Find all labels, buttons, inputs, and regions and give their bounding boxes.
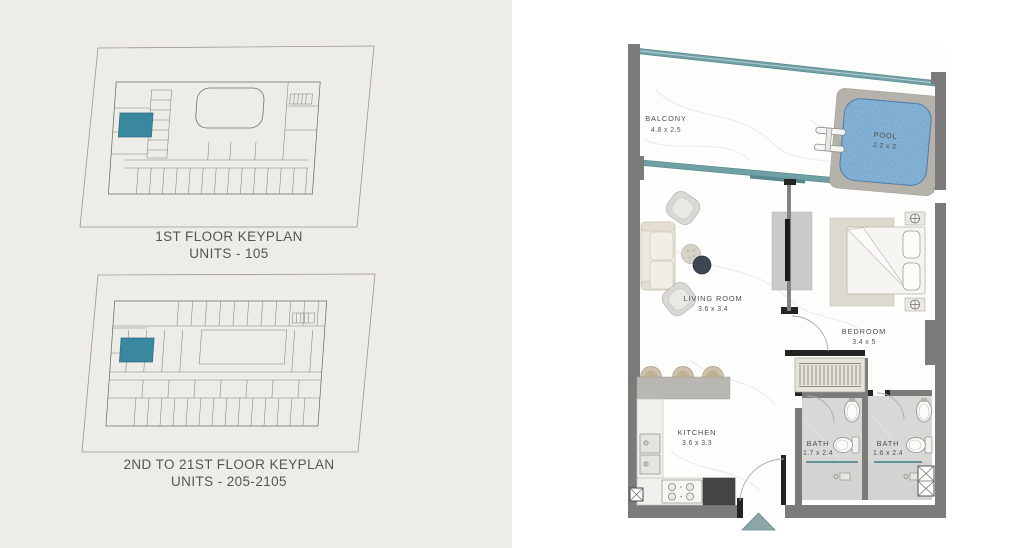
floorplan-page: 1ST FLOOR KEYPLAN UNITS - 105 (0, 0, 1024, 548)
corner-shaft (630, 488, 643, 501)
keyplan-panel: 1ST FLOOR KEYPLAN UNITS - 105 (0, 0, 512, 548)
unit-floor-plan: POOL 2.2 x 2 BALCONY 4.8 x 2.5 (600, 30, 1024, 540)
tv-screen (785, 219, 790, 281)
living-room-dims: 3.6 x 3.4 (698, 306, 728, 313)
bed (830, 218, 925, 306)
keyplan-1-caption: 1ST FLOOR KEYPLAN UNITS - 105 (0, 229, 458, 262)
keyplan-1-title: 1ST FLOOR KEYPLAN (0, 229, 458, 246)
entry-door-leaf (781, 455, 786, 505)
bath1-toilet (834, 437, 860, 453)
bar-stools (641, 367, 724, 378)
bath1-label: BATH (807, 439, 830, 448)
keyplan-2-title: 2ND TO 21ST FLOOR KEYPLAN (0, 457, 458, 474)
bath2-toilet (907, 437, 933, 453)
keyplan-2-caption: 2ND TO 21ST FLOOR KEYPLAN UNITS - 205-21… (0, 457, 458, 490)
kitchen-label: KITCHEN (678, 428, 717, 437)
pillow-2 (903, 263, 920, 290)
highlighted-unit-105 (118, 113, 153, 137)
tv-panel (772, 212, 812, 290)
right-wall-notch (934, 190, 947, 203)
living-room-label: LIVING ROOM (683, 294, 742, 303)
breakfast-bar (637, 377, 730, 399)
bath1-dims: 1.7 x 2.4 (803, 450, 833, 457)
balcony-dims: 4.8 x 2.5 (651, 127, 681, 134)
pool-texture (839, 97, 933, 186)
keyplan-1-building (108, 82, 320, 194)
stove (662, 480, 702, 503)
unit-plan-panel: POOL 2.2 x 2 BALCONY 4.8 x 2.5 (512, 0, 1024, 548)
kitchen-appliance-block (703, 478, 735, 505)
keyplan-2-building (106, 301, 327, 426)
highlighted-unit-205 (119, 338, 154, 362)
keyplan-1st-floor-drawing (75, 42, 385, 237)
bedroom-label: BEDROOM (842, 327, 887, 336)
bath2-dims: 1.6 x 2.4 (873, 450, 903, 457)
sofa (641, 222, 675, 290)
kitchen-dims: 3.6 x 3.3 (682, 440, 712, 447)
balcony-label: BALCONY (645, 114, 687, 123)
wardrobe (795, 358, 865, 392)
keyplan-2-subtitle: UNITS - 205-2105 (0, 474, 458, 491)
keyplan-1-subtitle: UNITS - 105 (0, 246, 458, 263)
service-shaft (918, 466, 934, 496)
keyplan-2nd-21st-drawing (75, 268, 385, 460)
pillow-1 (903, 231, 920, 258)
bath2-label: BATH (877, 439, 900, 448)
bedroom-dims: 3.4 x 5 (852, 339, 876, 346)
